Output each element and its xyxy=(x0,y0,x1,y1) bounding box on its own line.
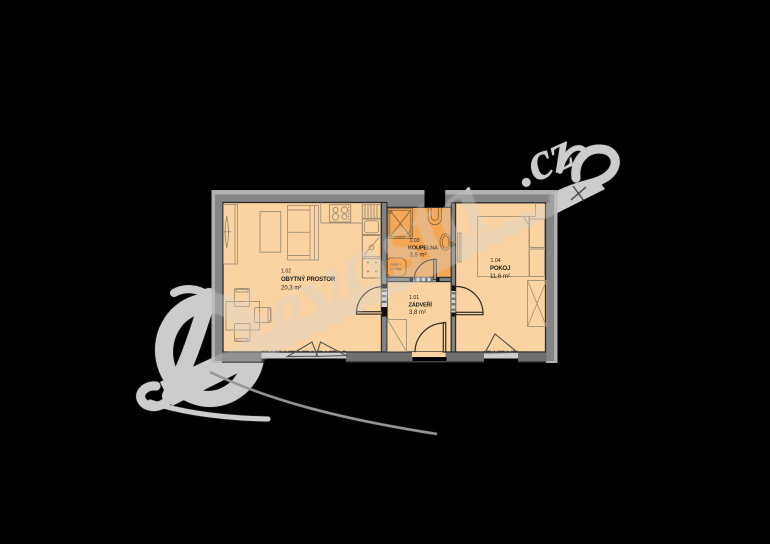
svg-text:11,6 m²: 11,6 m² xyxy=(490,274,510,280)
svg-text:ZÁDVEŘÍ: ZÁDVEŘÍ xyxy=(409,301,433,309)
svg-text:POKOJ: POKOJ xyxy=(490,266,510,272)
svg-text:3,8 m²: 3,8 m² xyxy=(409,310,426,316)
svg-text:1.04: 1.04 xyxy=(491,258,501,264)
